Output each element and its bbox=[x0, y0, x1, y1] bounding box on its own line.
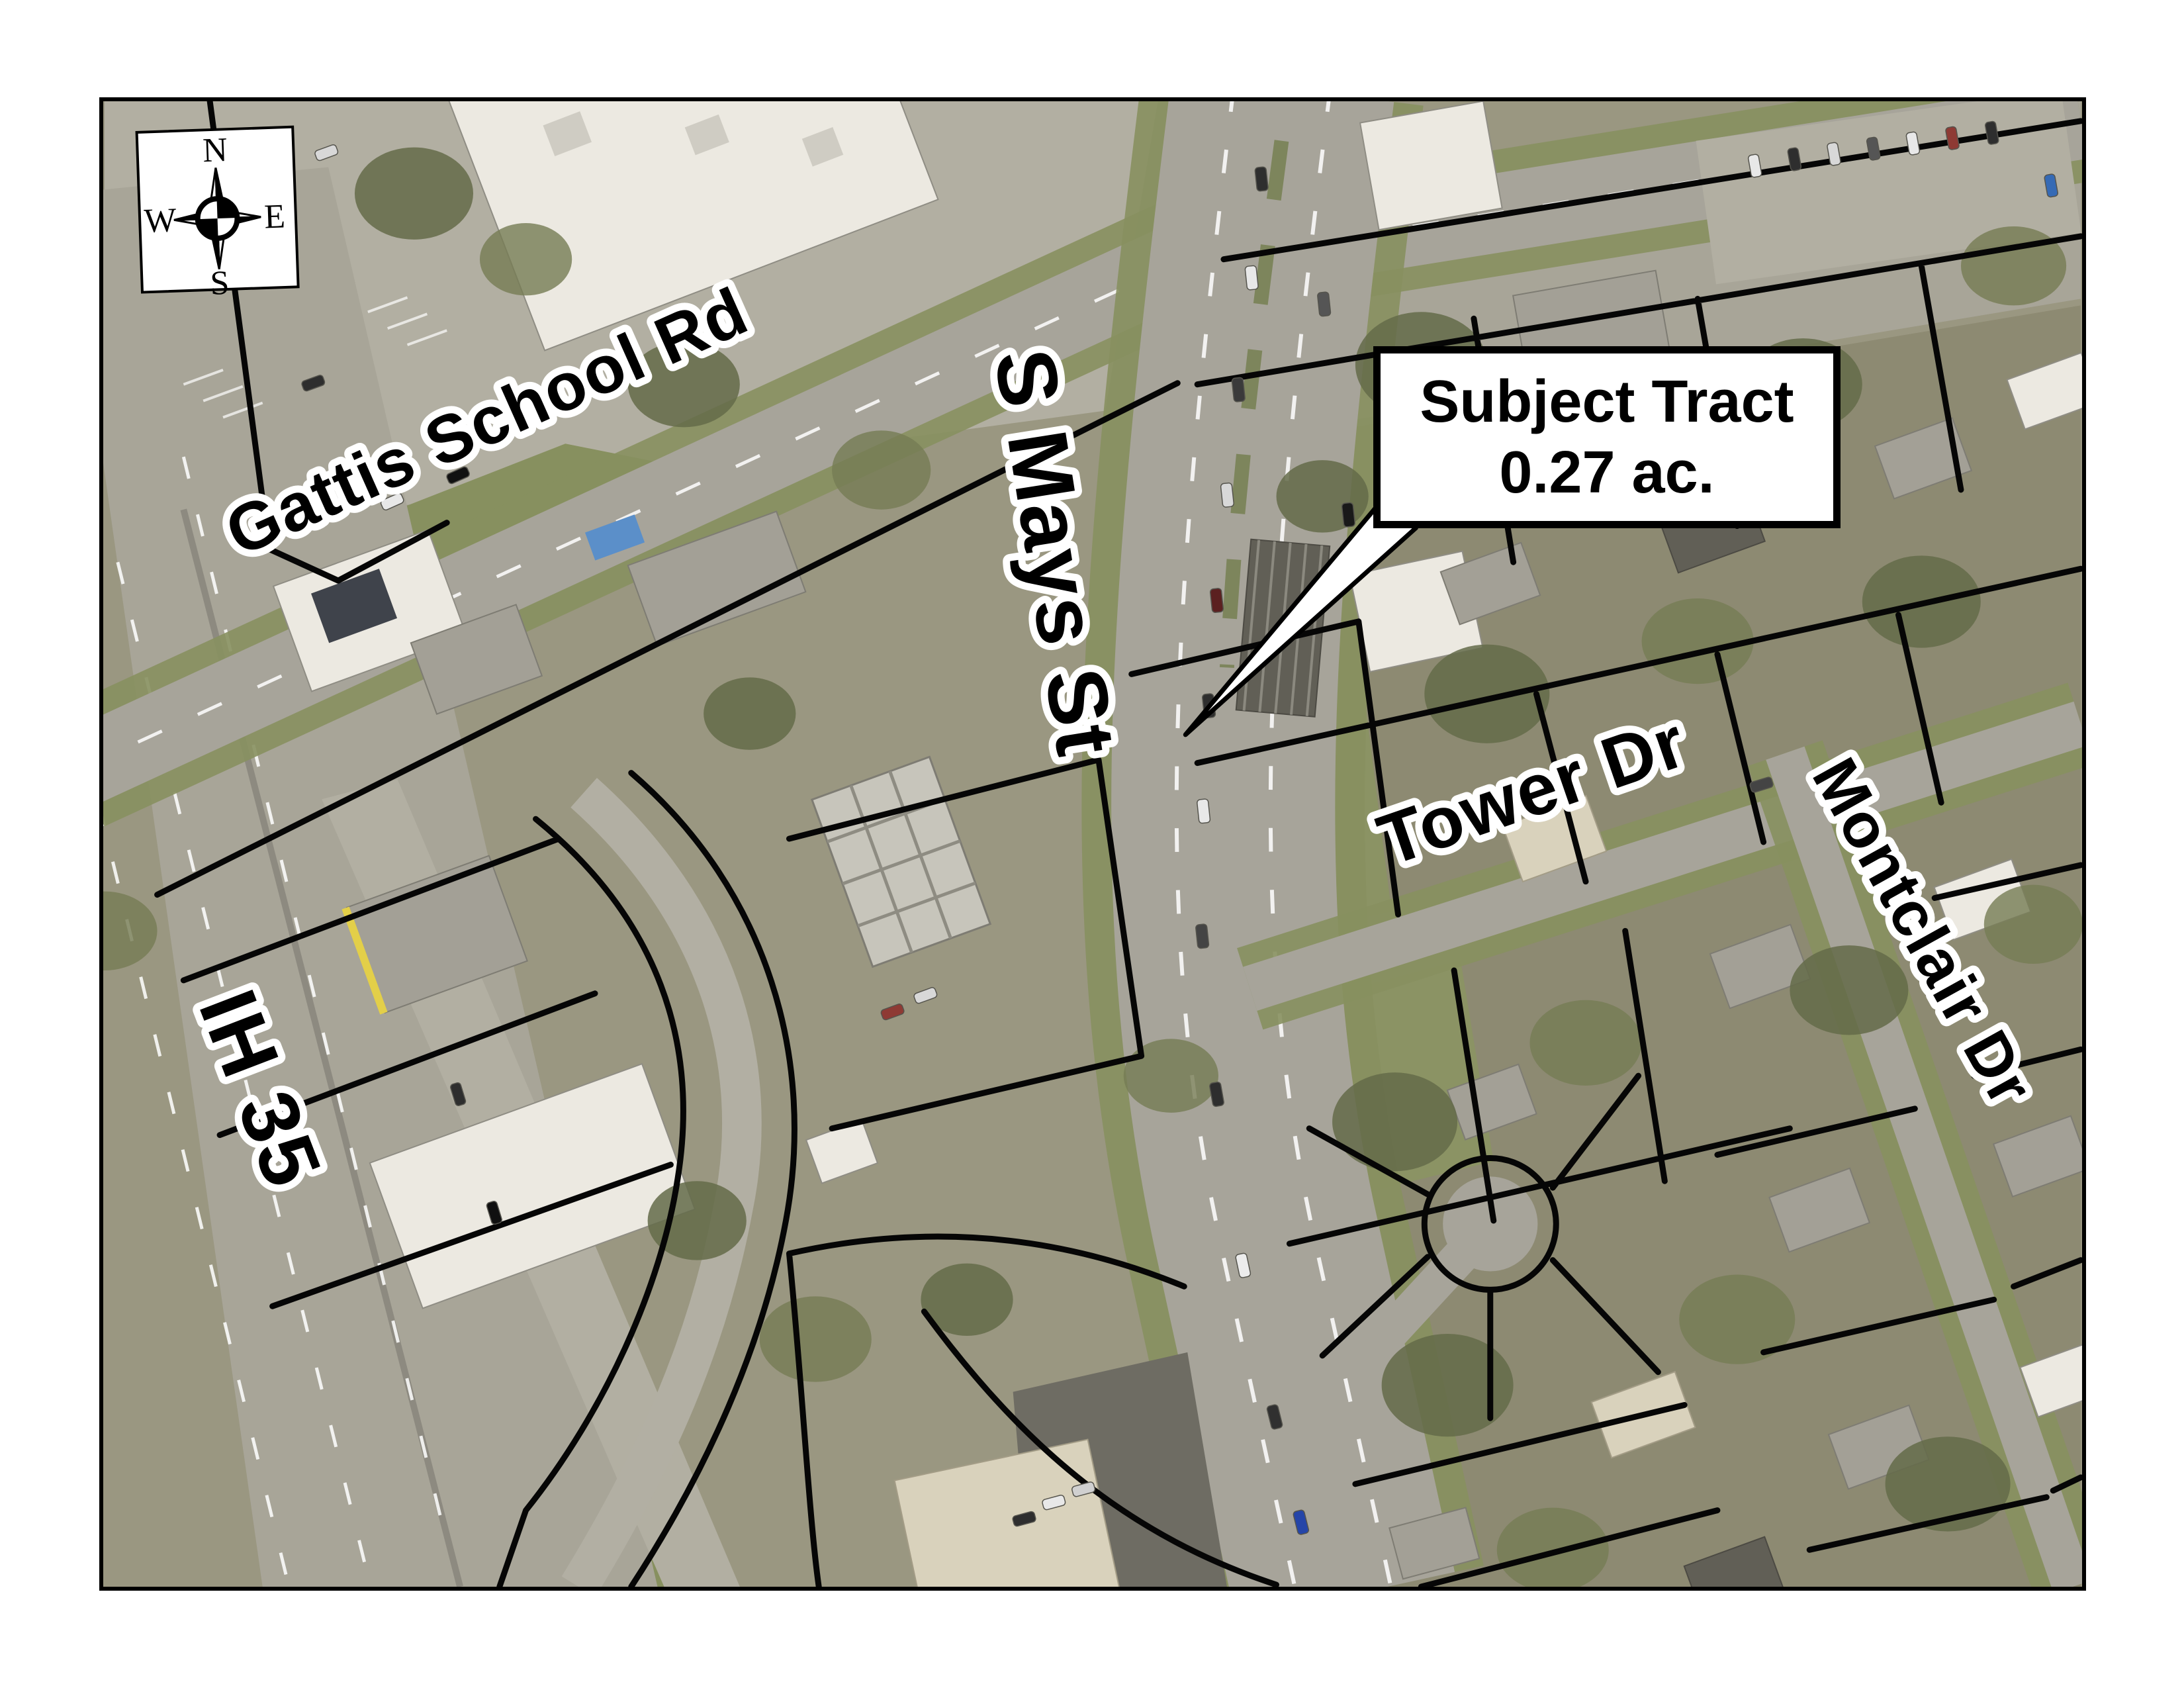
subject-tract-callout: Subject Tract 0.27 ac. bbox=[1373, 346, 1841, 528]
white-roof-building bbox=[1360, 101, 1502, 230]
compass-rose: N E S W bbox=[137, 127, 299, 305]
map-frame: Gattis School Rd S Mays St IH 35 Tower D… bbox=[99, 97, 2086, 1591]
page: { "map": { "compass": { "n": "N", "e": "… bbox=[0, 0, 2184, 1688]
compass-s: S bbox=[210, 264, 230, 303]
callout-title: Subject Tract bbox=[1420, 367, 1794, 437]
s-mays-st-road bbox=[1223, 101, 1345, 1587]
aerial-imagery: Gattis School Rd S Mays St IH 35 Tower D… bbox=[103, 101, 2082, 1587]
callout-area: 0.27 ac. bbox=[1499, 438, 1714, 508]
compass-w: W bbox=[144, 201, 177, 240]
compass-e: E bbox=[263, 197, 286, 236]
compass-n: N bbox=[202, 131, 228, 169]
